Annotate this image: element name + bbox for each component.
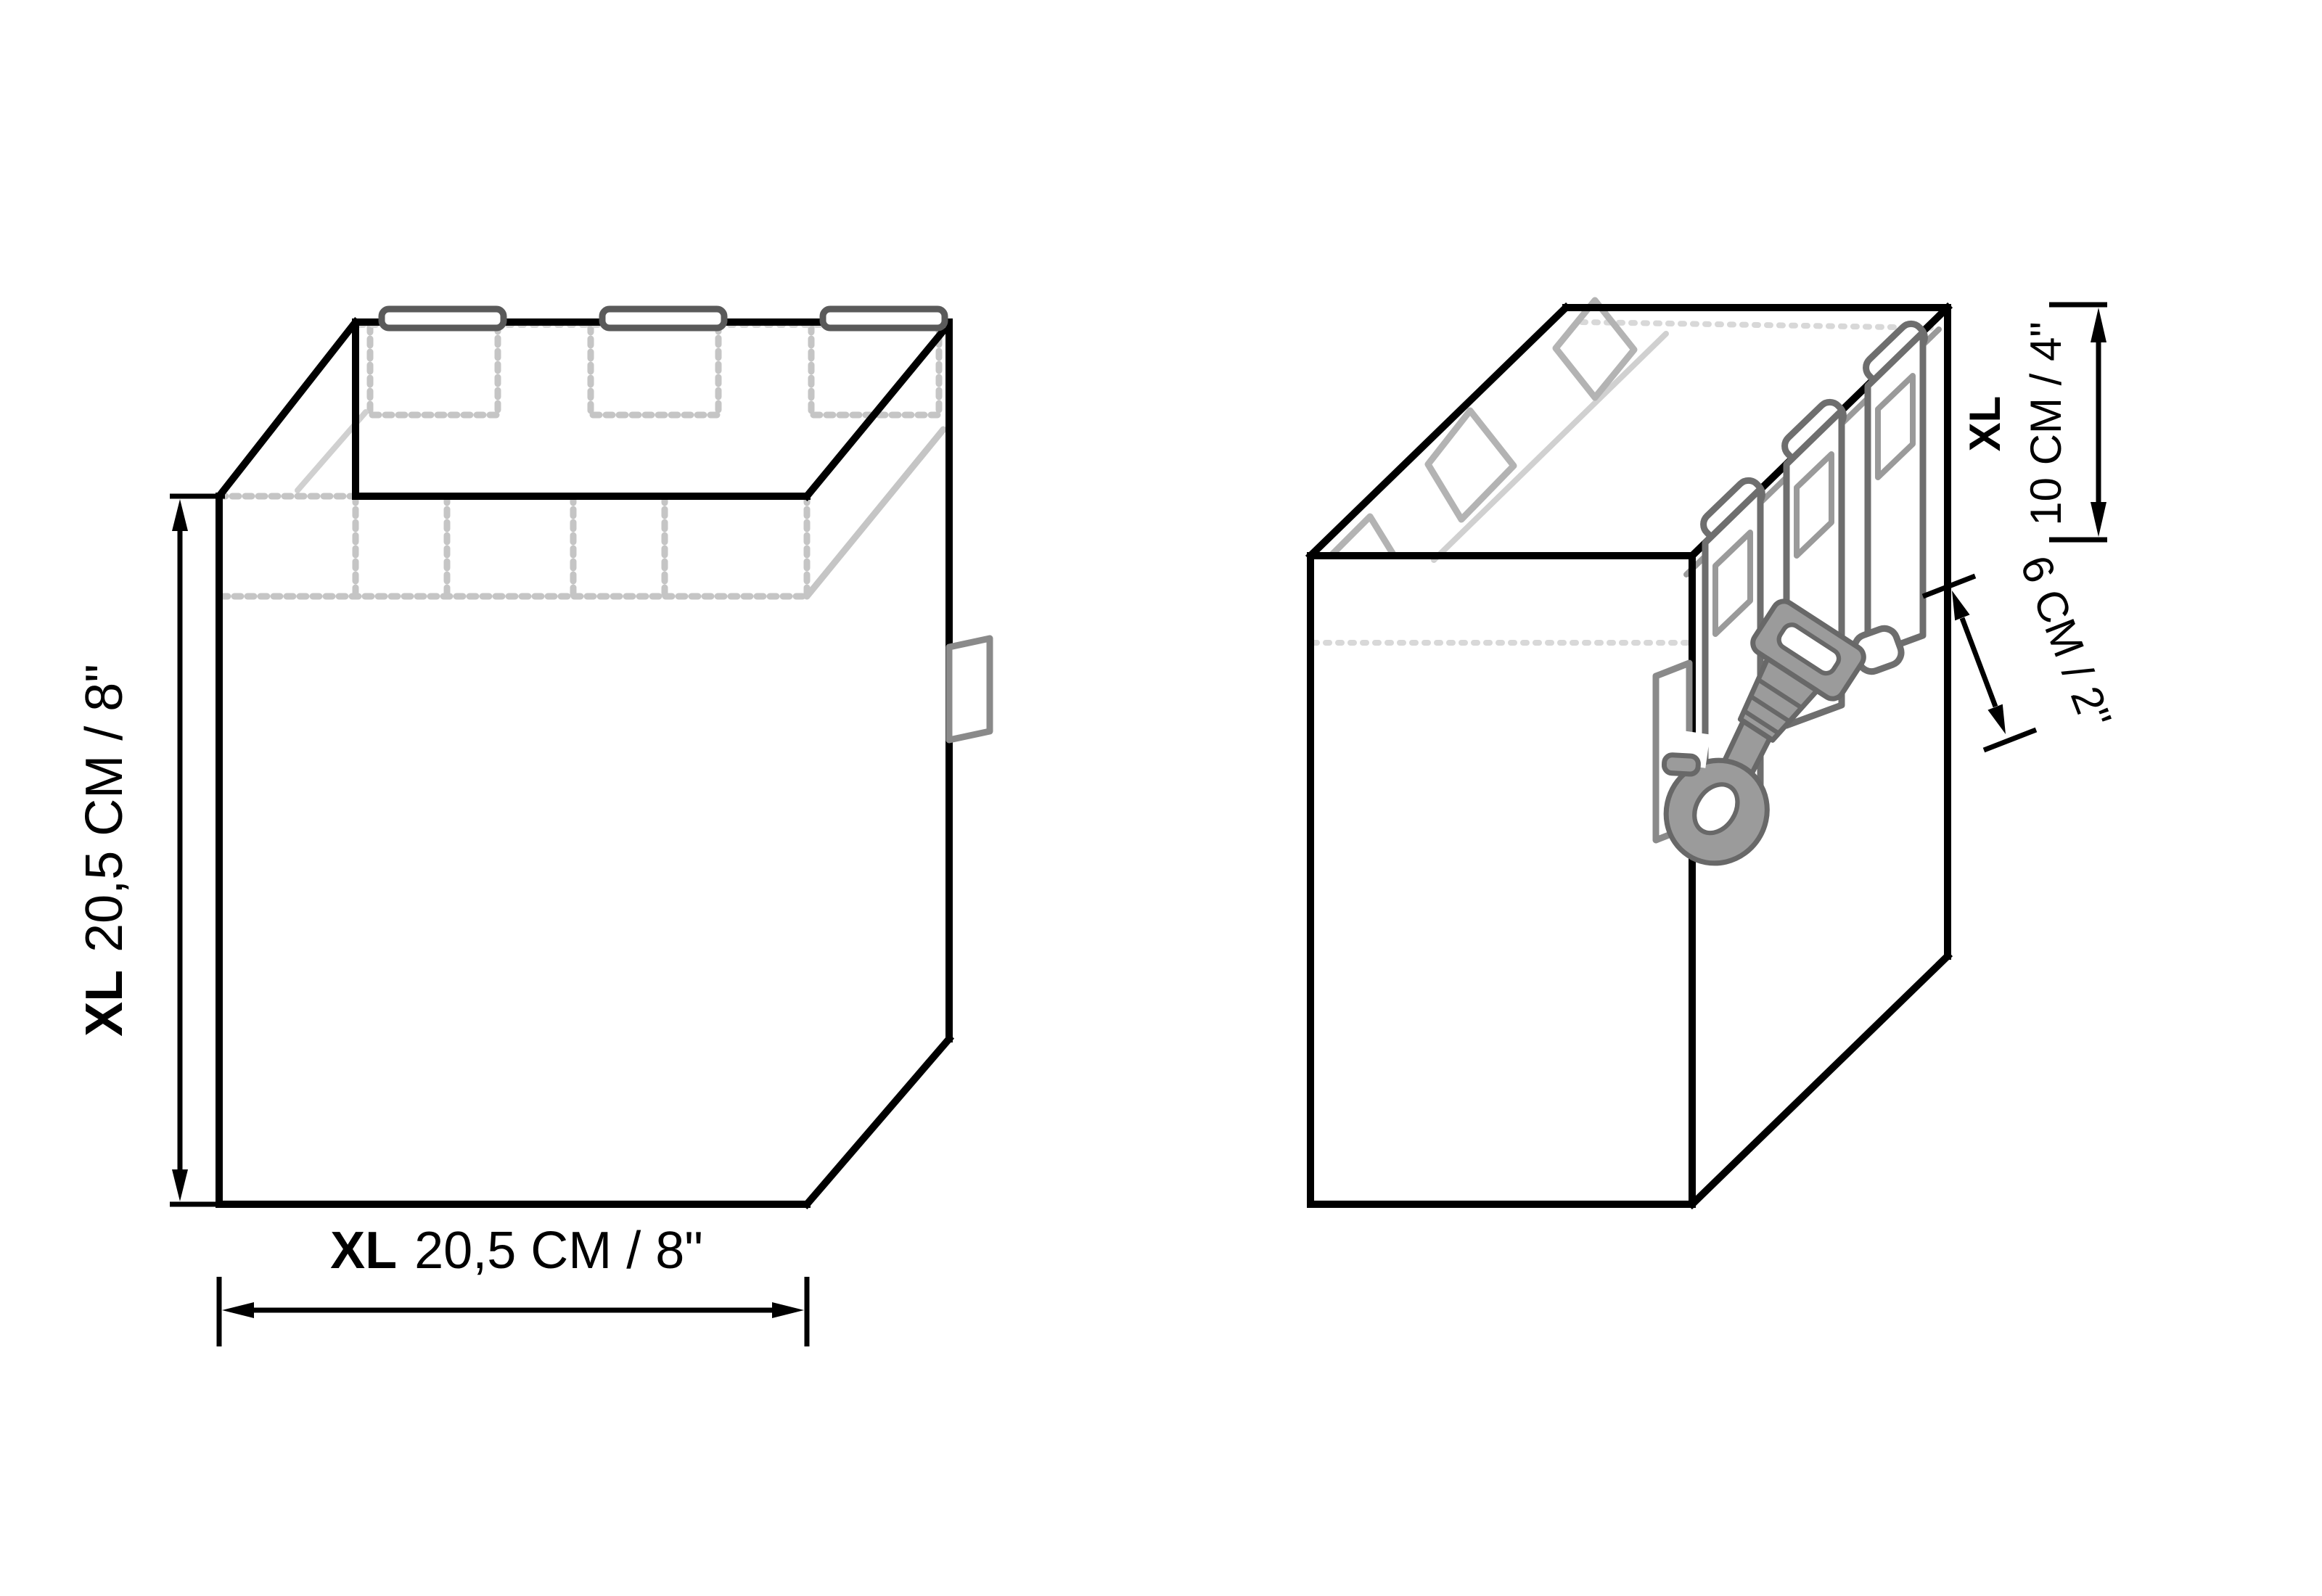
side-box-outline <box>1310 308 1948 1204</box>
arrowhead-left <box>222 1302 254 1318</box>
technical-drawing: XL20,5 CM / 8" XL20,5 CM / 8" <box>0 0 2322 1596</box>
velcro-diamond <box>1556 300 1634 398</box>
width-dimension: XL20,5 CM / 8" <box>219 1222 807 1346</box>
inner-velcro-diamonds <box>1332 300 1634 554</box>
velcro-patch <box>811 322 939 415</box>
inner-wall-edge <box>1434 334 1666 560</box>
strap-dimension: 6 CM / 2" <box>1923 549 2121 750</box>
arrowhead-up <box>172 499 188 531</box>
bottom-right-slant-edge <box>1692 956 1948 1204</box>
dim-line <box>1962 618 1995 707</box>
arrowhead-right <box>772 1302 804 1318</box>
arrowhead-down <box>2091 502 2106 537</box>
inner-velcro-patches <box>360 322 943 415</box>
depth-size-label: XL <box>1961 396 2009 452</box>
top-tab <box>602 309 724 328</box>
height-dimension: XL20,5 CM / 8" <box>75 496 225 1204</box>
left-slant-edge <box>1310 308 1566 556</box>
side-view-drawing: XL 10 CM / 4" 6 CM / 2" <box>1310 300 2121 1204</box>
top-tab <box>823 309 945 328</box>
left-slant-edge <box>219 322 356 496</box>
diagram-page: XL20,5 CM / 8" XL20,5 CM / 8" <box>0 0 2322 1596</box>
molle-strap <box>1851 319 1929 675</box>
molle-band-side-wrap <box>807 429 943 596</box>
arrowhead-down <box>172 1169 188 1201</box>
side-loop-tab <box>949 638 990 740</box>
bottom-right-slant-edge <box>807 1039 949 1204</box>
arrowhead-up <box>2091 308 2106 342</box>
width-dimension-label: XL20,5 CM / 8" <box>330 1222 703 1280</box>
dim-tick <box>1984 730 2036 750</box>
front-view-drawing: XL20,5 CM / 8" XL20,5 CM / 8" <box>75 309 990 1346</box>
height-dimension-label: XL20,5 CM / 8" <box>75 664 134 1037</box>
clip-hook-tip <box>1664 754 1699 774</box>
inner-back-rim <box>1582 322 1939 328</box>
top-tabs <box>382 309 945 328</box>
arrowhead-up <box>1952 591 1970 620</box>
depth-dimension-label: 10 CM / 4" <box>2022 321 2070 525</box>
strap-dimension-label: 6 CM / 2" <box>2011 549 2120 735</box>
arrowhead-down <box>1987 704 2006 734</box>
top-tab <box>382 309 504 328</box>
depth-dimension: XL 10 CM / 4" <box>1961 305 2107 540</box>
molle-band-outline <box>219 496 807 596</box>
velcro-patch <box>591 322 718 415</box>
velcro-patch <box>370 322 498 415</box>
